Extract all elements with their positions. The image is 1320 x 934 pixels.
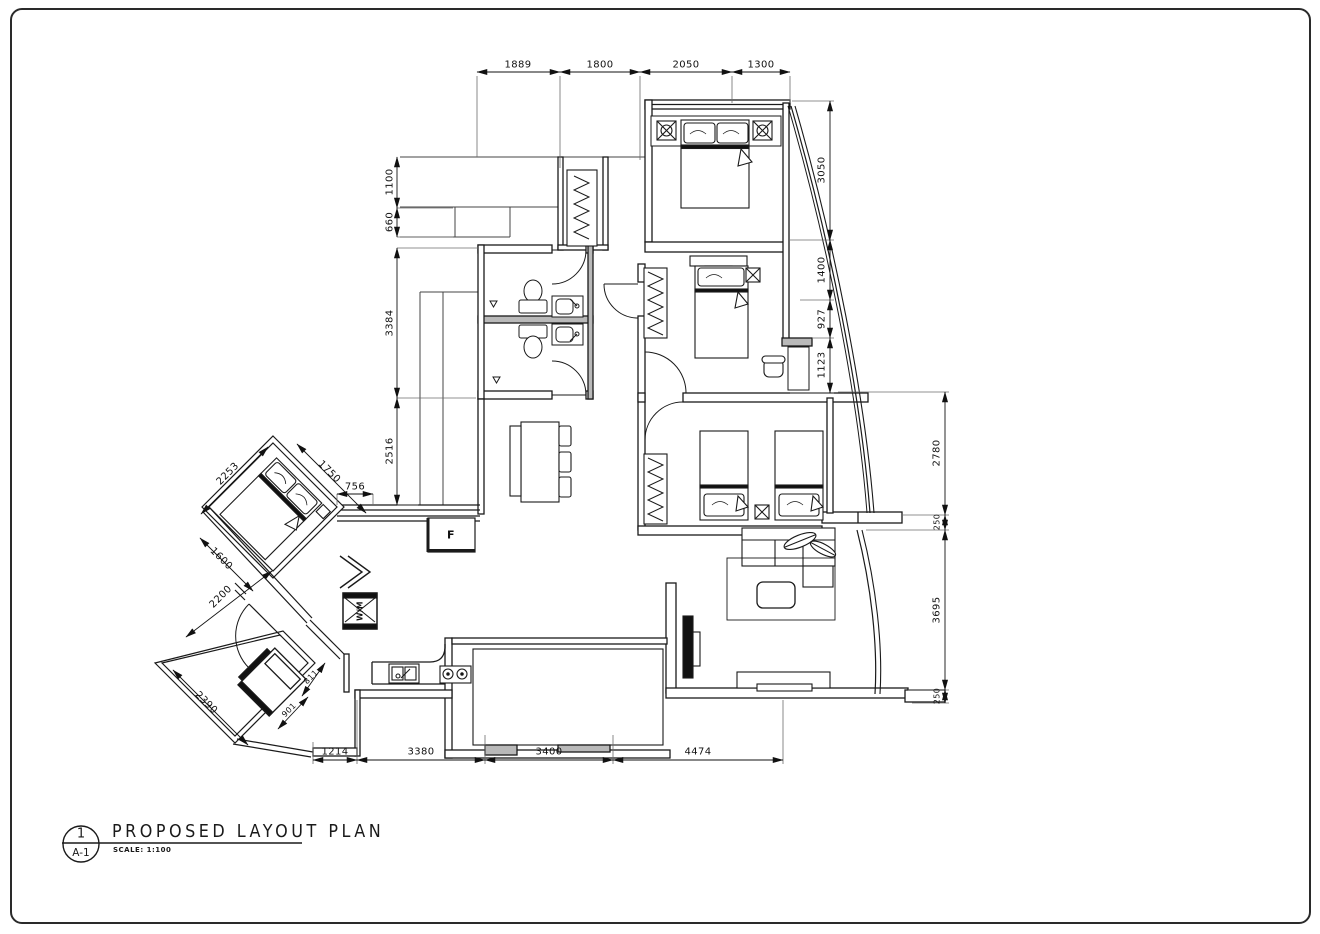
floor-plan-sheet: 1889 1800 2050 1300 1100 660 3384 2516 3…: [0, 0, 1320, 934]
dim-diag-756: 756: [345, 482, 365, 493]
dim-left-4: 2516: [385, 437, 396, 464]
dim-right-inner-1: 3050: [817, 156, 828, 183]
fridge-label: F: [447, 529, 455, 542]
drawing-scale: SCALE: 1:100: [113, 846, 171, 854]
furniture-living: [340, 422, 838, 691]
bathroom-fixtures: [490, 280, 583, 383]
dim-left-2: 660: [385, 212, 396, 232]
dim-left-1: 1100: [385, 168, 396, 195]
dim-right-outer-1: 2780: [932, 439, 943, 466]
extension-lines: [313, 76, 949, 764]
dim-right-outer-4: 250: [933, 688, 942, 704]
floor-plan-drawing: [0, 0, 1320, 934]
dim-right-outer-2: 250: [933, 514, 942, 530]
dim-bottom-1: 1214: [321, 747, 348, 758]
detail-number: 1: [77, 827, 85, 842]
drawing-title: PROPOSED LAYOUT PLAN: [112, 821, 384, 842]
dim-top-1: 1889: [504, 60, 531, 71]
walls: [313, 100, 945, 758]
dim-bottom-4: 4474: [684, 747, 711, 758]
washing-machine-label: W/M: [356, 601, 365, 621]
dim-top-4: 1300: [747, 60, 774, 71]
dim-left-3: 3384: [385, 309, 396, 336]
dim-right-inner-3: 927: [817, 309, 828, 329]
dim-bottom-3: 3400: [535, 747, 562, 758]
dim-top-3: 2050: [672, 60, 699, 71]
dim-right-outer-3: 3695: [932, 596, 943, 623]
dim-right-inner-2: 1400: [817, 256, 828, 283]
dim-bottom-2: 3380: [407, 747, 434, 758]
dim-right-inner-4: 1123: [817, 351, 828, 378]
dim-top-2: 1800: [586, 60, 613, 71]
sheet-number: A-1: [72, 847, 89, 859]
